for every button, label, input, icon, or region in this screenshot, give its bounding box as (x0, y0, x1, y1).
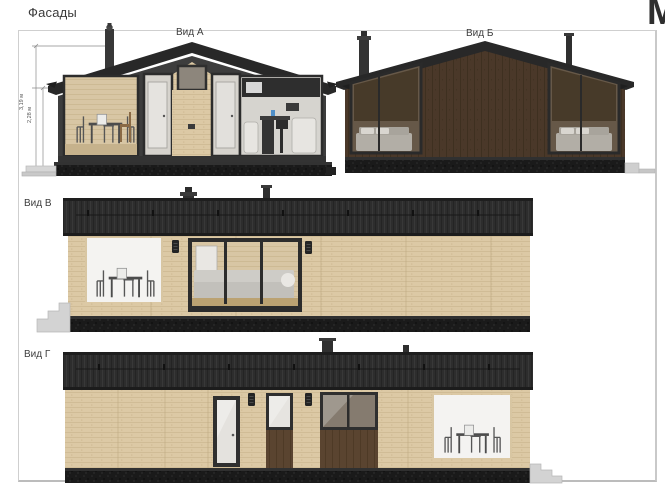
flat-roof (63, 352, 533, 390)
wall-vent-grille (172, 240, 179, 253)
chimney (319, 338, 336, 352)
steps-right (530, 464, 562, 483)
flat-roof (63, 198, 533, 236)
base-plinth (65, 468, 530, 483)
window-wide (320, 392, 378, 468)
sliding-glass-doors (188, 238, 302, 312)
steps-right (625, 163, 655, 173)
base-plinth (54, 162, 336, 176)
base-plinth (345, 157, 625, 173)
base-plinth (68, 316, 530, 332)
facades-sheet: Фасады M Вид А Вид Б Вид В Вид Г 3,19 м … (0, 0, 665, 502)
window-office (240, 76, 322, 156)
vent-pipe (564, 33, 574, 67)
wall-vent-grille (305, 241, 312, 254)
glass-door-left (144, 74, 172, 156)
center-wood-column (172, 90, 212, 156)
terrace-opening (432, 395, 512, 458)
wall-lamp (305, 393, 312, 406)
vent-pipe (403, 345, 409, 352)
window-small (266, 393, 293, 468)
vent-pipe (261, 185, 272, 200)
glass-door-right (212, 74, 240, 156)
elevation-g-drawing (18, 338, 563, 488)
elevation-b-drawing (335, 25, 665, 185)
elevation-a-drawing (20, 20, 345, 192)
sheet-title: Фасады (28, 5, 77, 20)
elevation-v-drawing (18, 182, 548, 342)
steps-left (37, 303, 70, 332)
entry-door (213, 396, 240, 467)
wall-lamp (248, 393, 255, 406)
terrace-opening (85, 238, 163, 302)
entry-step (22, 166, 56, 176)
